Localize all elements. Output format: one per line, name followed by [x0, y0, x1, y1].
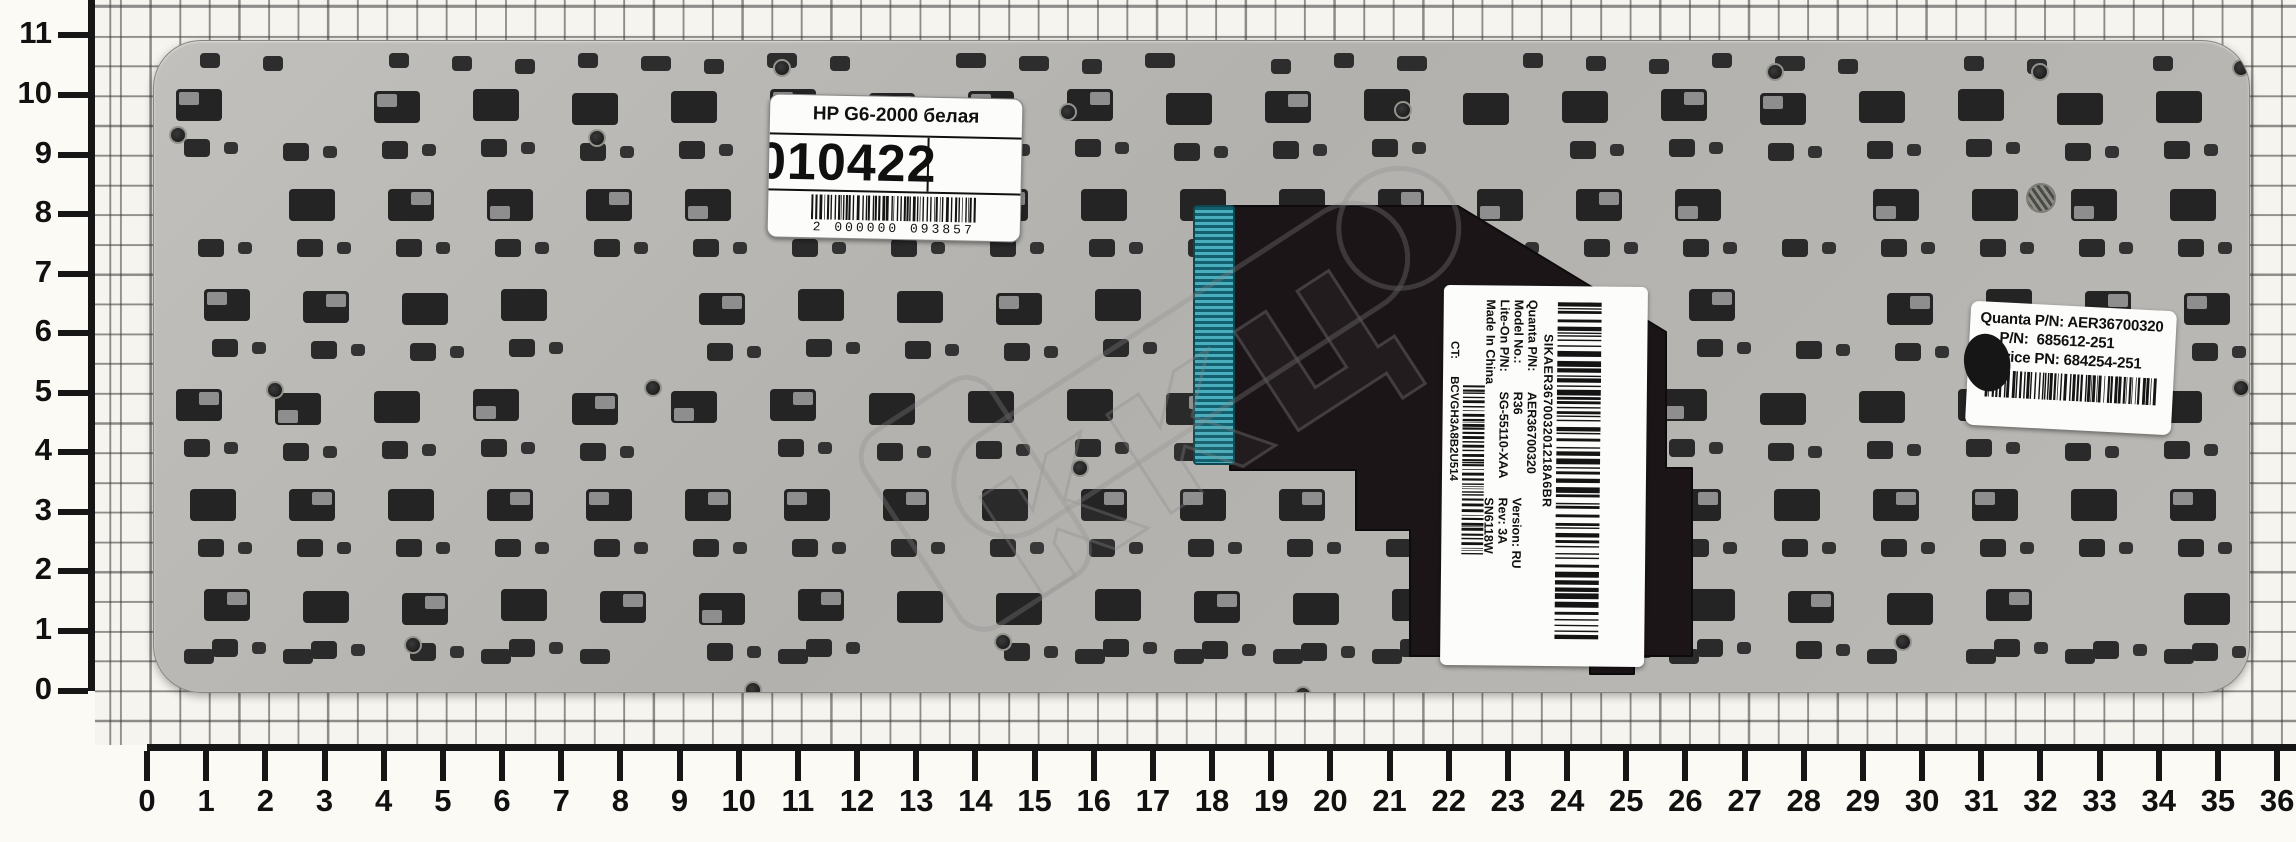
shop-label-code-row: 010422 [769, 134, 1022, 193]
switch-cutout [2204, 444, 2218, 456]
switch-cutout [1796, 341, 1822, 359]
switch-cutout [1194, 291, 1240, 323]
switch-cutout [388, 189, 434, 221]
switch-cutout [1279, 189, 1325, 221]
switch-cutout [704, 59, 724, 74]
switch-cutout [917, 446, 931, 458]
ruler-tick [736, 751, 742, 781]
screw-hole [169, 126, 187, 144]
ruler-tick [1150, 751, 1156, 781]
ruler-number: 5 [0, 373, 52, 409]
switch-cutout [1788, 591, 1834, 623]
switch-cutout [1584, 239, 1610, 257]
screw-hole [1071, 459, 1089, 477]
switch-cutout [891, 539, 917, 557]
switch-cutout [396, 239, 422, 257]
switch-cutout [1980, 239, 2006, 257]
switch-cutout [289, 489, 335, 521]
switch-cutout [252, 342, 266, 354]
switch-cutout [1287, 539, 1313, 557]
switch-cutout [422, 144, 436, 156]
switch-cutout [806, 339, 832, 357]
switch-cutout [2156, 91, 2202, 123]
switch-cutout [351, 344, 365, 356]
ruler-tick [58, 390, 88, 396]
screw-hole [1894, 633, 1912, 651]
switch-cutout [1887, 593, 1933, 625]
ruler-number: 6 [0, 313, 52, 349]
ruler-number: 7 [0, 254, 52, 290]
switch-cutout [830, 56, 850, 71]
switch-cutout [2006, 142, 2020, 154]
switch-cutout [2164, 141, 2190, 159]
switch-cutout [733, 242, 747, 254]
keyboard-backplate [153, 40, 2250, 693]
switch-cutout [1372, 649, 1402, 664]
switch-cutout [891, 239, 917, 257]
switch-cutout [535, 542, 549, 554]
ruler-tick [203, 751, 209, 781]
switch-cutout [1709, 442, 1723, 454]
switch-cutout [1004, 343, 1030, 361]
switch-cutout [1341, 346, 1355, 358]
switch-cutout [685, 189, 731, 221]
ruler-number: 3 [0, 492, 52, 528]
switch-cutout [798, 589, 844, 621]
switch-cutout [176, 89, 222, 121]
switch-cutout [1867, 441, 1893, 459]
switch-cutout [1313, 144, 1327, 156]
switch-cutout [1214, 446, 1228, 458]
ruler-number: 28 [1774, 783, 1834, 819]
switch-cutout [1030, 542, 1044, 554]
switch-cutout [897, 291, 943, 323]
ruler-number: 8 [590, 783, 650, 819]
shop-label-code: 010422 [769, 134, 1022, 193]
ruler-number: 0 [117, 783, 177, 819]
switch-cutout [2164, 441, 2190, 459]
barcode [1984, 370, 2157, 406]
switch-cutout [1966, 439, 1992, 457]
switch-cutout [634, 242, 648, 254]
ruler-tick [58, 509, 88, 515]
ruler-number: 23 [1478, 783, 1538, 819]
switch-cutout [2232, 346, 2246, 358]
switch-cutout [2153, 56, 2173, 71]
switch-cutout [1712, 53, 1732, 68]
ruler-number: 4 [354, 783, 414, 819]
switch-cutout [1030, 242, 1044, 254]
switch-cutout [501, 289, 547, 321]
switch-cutout [1279, 489, 1325, 521]
switch-cutout [1822, 242, 1836, 254]
ruler-tick [2215, 751, 2221, 781]
switch-cutout [1570, 141, 1596, 159]
switch-cutout [1881, 539, 1907, 557]
ruler-number: 30 [1892, 783, 1952, 819]
switch-cutout [778, 439, 804, 457]
ruler-tick [1801, 751, 1807, 781]
ruler-tick [58, 568, 88, 574]
switch-cutout [2184, 293, 2230, 325]
switch-cutout [311, 641, 337, 659]
switch-cutout [806, 639, 832, 657]
switch-cutout [784, 489, 830, 521]
switch-cutout [1081, 189, 1127, 221]
serial-number: SIKAER367003201218A6BR [1540, 334, 1556, 508]
ruler-number: 34 [2129, 783, 2189, 819]
switch-cutout [374, 391, 420, 423]
ruler-number: 1 [0, 611, 52, 647]
switch-cutout [1624, 242, 1638, 254]
switch-cutout [2192, 643, 2218, 661]
screw-hole [1766, 63, 1784, 81]
switch-cutout [1271, 59, 1291, 74]
switch-cutout [905, 341, 931, 359]
switch-cutout [436, 242, 450, 254]
shop-label-title: HP G6-2000 белая [770, 94, 1023, 137]
switch-cutout [297, 539, 323, 557]
switch-cutout [2071, 489, 2117, 521]
switch-cutout [1768, 143, 1794, 161]
screw-hole [588, 129, 606, 147]
switch-cutout [586, 489, 632, 521]
switch-cutout [1075, 649, 1105, 664]
switch-cutout [1562, 91, 1608, 123]
switch-cutout [1859, 91, 1905, 123]
switch-cutout [877, 443, 903, 461]
switch-cutout [1067, 389, 1113, 421]
switch-cutout [1095, 289, 1141, 321]
switch-cutout [996, 593, 1042, 625]
ruler-tick [58, 688, 88, 694]
switch-cutout [897, 591, 943, 623]
switch-cutout [2006, 442, 2020, 454]
switch-cutout [1089, 539, 1115, 557]
switch-cutout [1994, 639, 2020, 657]
field-label: Model No.: [1511, 300, 1526, 392]
screw-hole [1294, 686, 1312, 693]
switch-cutout [1103, 339, 1129, 357]
revision: Rev: 3A [1495, 497, 1510, 568]
switch-cutout [693, 539, 719, 557]
switch-cutout [1327, 542, 1341, 554]
screw-hole [2031, 63, 2049, 81]
switch-cutout [2020, 242, 2034, 254]
switch-cutout [436, 542, 450, 554]
switch-cutout [283, 443, 309, 461]
switch-cutout [184, 139, 210, 157]
switch-cutout [1228, 242, 1242, 254]
ruler-tick [972, 751, 978, 781]
ruler-number: 2 [235, 783, 295, 819]
switch-cutout [2119, 542, 2133, 554]
switch-cutout [1412, 142, 1426, 154]
switch-cutout [792, 539, 818, 557]
switch-cutout [402, 293, 448, 325]
switch-cutout [1661, 389, 1707, 421]
ruler-number: 25 [1596, 783, 1656, 819]
switch-cutout [323, 446, 337, 458]
switch-cutout [1166, 393, 1212, 425]
switch-cutout [289, 189, 335, 221]
switch-cutout [1958, 89, 2004, 121]
switch-cutout [1723, 542, 1737, 554]
ruler-tick [1860, 751, 1866, 781]
switch-cutout [1921, 242, 1935, 254]
switch-cutout [1426, 242, 1440, 254]
screw-hole [744, 681, 762, 693]
switch-cutout [1378, 489, 1424, 521]
version: Version: RU [1509, 498, 1524, 569]
switch-cutout [487, 489, 533, 521]
switch-cutout [495, 239, 521, 257]
screw-hole [1059, 103, 1077, 121]
switch-cutout [1485, 239, 1511, 257]
switch-cutout [382, 141, 408, 159]
switch-cutout [2218, 542, 2232, 554]
switch-cutout [1867, 649, 1897, 664]
switch-cutout [1143, 642, 1157, 654]
ruler-number: 9 [0, 135, 52, 171]
switch-cutout [212, 639, 238, 657]
switch-cutout [1966, 139, 1992, 157]
switch-cutout [883, 489, 929, 521]
switch-cutout [2079, 239, 2105, 257]
switch-cutout [1293, 593, 1339, 625]
switch-cutout [1768, 443, 1794, 461]
switch-cutout [1873, 489, 1919, 521]
switch-cutout [2178, 539, 2204, 557]
barcode [811, 194, 977, 222]
field-label: Quanta P/N: [1980, 309, 2064, 330]
switch-cutout [2164, 649, 2194, 664]
ruler-tick [1919, 751, 1925, 781]
switch-cutout [374, 91, 420, 123]
switch-cutout [1202, 641, 1228, 659]
switch-cutout [1364, 389, 1410, 421]
ruler-tick [58, 92, 88, 98]
switch-cutout [1174, 443, 1200, 461]
switch-cutout [204, 589, 250, 621]
switch-cutout [1242, 344, 1256, 356]
switch-cutout [956, 53, 986, 68]
switch-cutout [402, 593, 448, 625]
ruler-tick [322, 751, 328, 781]
switch-cutout [685, 489, 731, 521]
switch-cutout [509, 639, 535, 657]
switch-cutout [1265, 391, 1311, 423]
switch-cutout [1273, 649, 1303, 664]
switch-cutout [1683, 539, 1709, 557]
switch-cutout [818, 442, 832, 454]
switch-cutout [198, 239, 224, 257]
switch-cutout [184, 649, 214, 664]
switch-cutout [1836, 644, 1850, 656]
switch-cutout [747, 646, 761, 658]
ruler-tick [440, 751, 446, 781]
switch-cutout [996, 293, 1042, 325]
ruler-number: 19 [1241, 783, 1301, 819]
ruler-tick [1091, 751, 1097, 781]
switch-cutout [481, 649, 511, 664]
ruler-tick [1742, 751, 1748, 781]
switch-cutout [719, 144, 733, 156]
ruler-tick [144, 751, 150, 781]
switch-cutout [699, 593, 745, 625]
switch-cutout [1986, 589, 2032, 621]
switch-cutout [422, 444, 436, 456]
ruler-tick [1505, 751, 1511, 781]
switch-cutout [252, 642, 266, 654]
ct-label: CT: [1448, 341, 1460, 359]
switch-cutout [303, 291, 349, 323]
switch-cutout [1327, 242, 1341, 254]
switch-cutout [1966, 649, 1996, 664]
ruler-tick [58, 211, 88, 217]
ruler-tick [58, 628, 88, 634]
switch-cutout [2020, 542, 2034, 554]
switch-cutout [389, 53, 409, 68]
ruler-number: 35 [2188, 783, 2248, 819]
ruler-tick [558, 751, 564, 781]
ruler-tick [58, 449, 88, 455]
switch-cutout [388, 489, 434, 521]
switch-cutout [263, 56, 283, 71]
switch-cutout [1016, 444, 1030, 456]
switch-cutout [521, 142, 535, 154]
switch-cutout [198, 539, 224, 557]
ruler-number: 11 [0, 15, 52, 51]
switch-cutout [351, 644, 365, 656]
switch-cutout [1044, 646, 1058, 658]
ruler-tick [58, 152, 88, 158]
switch-cutout [1273, 141, 1299, 159]
switch-cutout [1166, 93, 1212, 125]
ruler-tick [1446, 751, 1452, 781]
switch-cutout [572, 393, 618, 425]
ruler-tick [913, 751, 919, 781]
switch-cutout [1180, 489, 1226, 521]
field-label: Lite-On P/N: [1497, 300, 1512, 392]
switch-cutout [1293, 293, 1339, 325]
switch-cutout [1145, 53, 1175, 68]
ruler-tick [677, 751, 683, 781]
hp-part-sticker: Quanta P/N: AER36700320 P/N: 685612-251 … [1965, 301, 2177, 436]
switch-cutout [1214, 146, 1228, 158]
switch-cutout [1907, 444, 1921, 456]
ruler-tick [1209, 751, 1215, 781]
switch-cutout [549, 342, 563, 354]
switch-cutout [1669, 649, 1699, 664]
ruler-tick [2156, 751, 2162, 781]
switch-cutout [1964, 56, 1984, 71]
screw-hole [773, 59, 791, 77]
switch-cutout [297, 239, 323, 257]
switch-cutout [945, 344, 959, 356]
ruler-number: 8 [0, 194, 52, 230]
switch-cutout [1188, 539, 1214, 557]
switch-cutout [620, 446, 634, 458]
switch-cutout [1129, 242, 1143, 254]
ruler-tick [1564, 751, 1570, 781]
switch-cutout [869, 393, 915, 425]
switch-cutout [473, 89, 519, 121]
switch-cutout [2105, 446, 2119, 458]
switch-cutout [1228, 542, 1242, 554]
manufacturer-sticker: SIKAER367003201218A6BR Quanta P/N:AER367… [1440, 285, 1648, 667]
switch-cutout [968, 391, 1014, 423]
switch-cutout [707, 343, 733, 361]
switch-cutout [2071, 189, 2117, 221]
screw-hole [266, 381, 284, 399]
switch-cutout [2105, 146, 2119, 158]
ruler-tick [2037, 751, 2043, 781]
switch-cutout [2133, 644, 2147, 656]
ruler-number: 33 [2070, 783, 2130, 819]
switch-cutout [586, 189, 632, 221]
switch-cutout [1044, 346, 1058, 358]
switch-cutout [1737, 342, 1751, 354]
switch-cutout [1972, 189, 2018, 221]
switch-cutout [1400, 639, 1426, 657]
ruler-tick [1327, 751, 1333, 781]
switch-cutout [1689, 589, 1735, 621]
switch-cutout [1089, 239, 1115, 257]
switch-cutout [410, 343, 436, 361]
ruler-tick [1623, 751, 1629, 781]
ruler-tick [617, 751, 623, 781]
switch-cutout [931, 242, 945, 254]
switch-cutout [1202, 341, 1228, 359]
field-label: Quanta P/N: [1525, 300, 1540, 392]
ruler-number: 11 [768, 783, 828, 819]
switch-cutout [1649, 59, 1669, 74]
screw-hole [1401, 456, 1419, 474]
switch-cutout [2065, 443, 2091, 461]
switch-cutout [2204, 144, 2218, 156]
ruler-number: 22 [1419, 783, 1479, 819]
ruler-number: 26 [1655, 783, 1715, 819]
ruler-number: 16 [1064, 783, 1124, 819]
ruler-number: 3 [295, 783, 355, 819]
switch-cutout [190, 489, 236, 521]
barcode [1554, 302, 1602, 646]
switch-cutout [2057, 93, 2103, 125]
switch-cutout [2093, 641, 2119, 659]
switch-cutout [509, 339, 535, 357]
switch-cutout [1822, 542, 1836, 554]
switch-cutout [1242, 644, 1256, 656]
switch-cutout [1523, 53, 1543, 68]
switch-cutout [337, 242, 351, 254]
switch-cutout [1683, 239, 1709, 257]
switch-cutout [1412, 442, 1426, 454]
switch-cutout [1782, 539, 1808, 557]
switch-cutout [452, 56, 472, 71]
switch-cutout [2184, 593, 2230, 625]
screw-hole [2232, 379, 2250, 397]
switch-cutout [594, 239, 620, 257]
ruler-number: 10 [0, 75, 52, 111]
switch-cutout [2119, 242, 2133, 254]
switch-cutout [594, 539, 620, 557]
switch-cutout [693, 239, 719, 257]
switch-cutout [1675, 489, 1721, 521]
switch-cutout [1980, 539, 2006, 557]
switch-cutout [1887, 293, 1933, 325]
ruler-number: 27 [1715, 783, 1775, 819]
